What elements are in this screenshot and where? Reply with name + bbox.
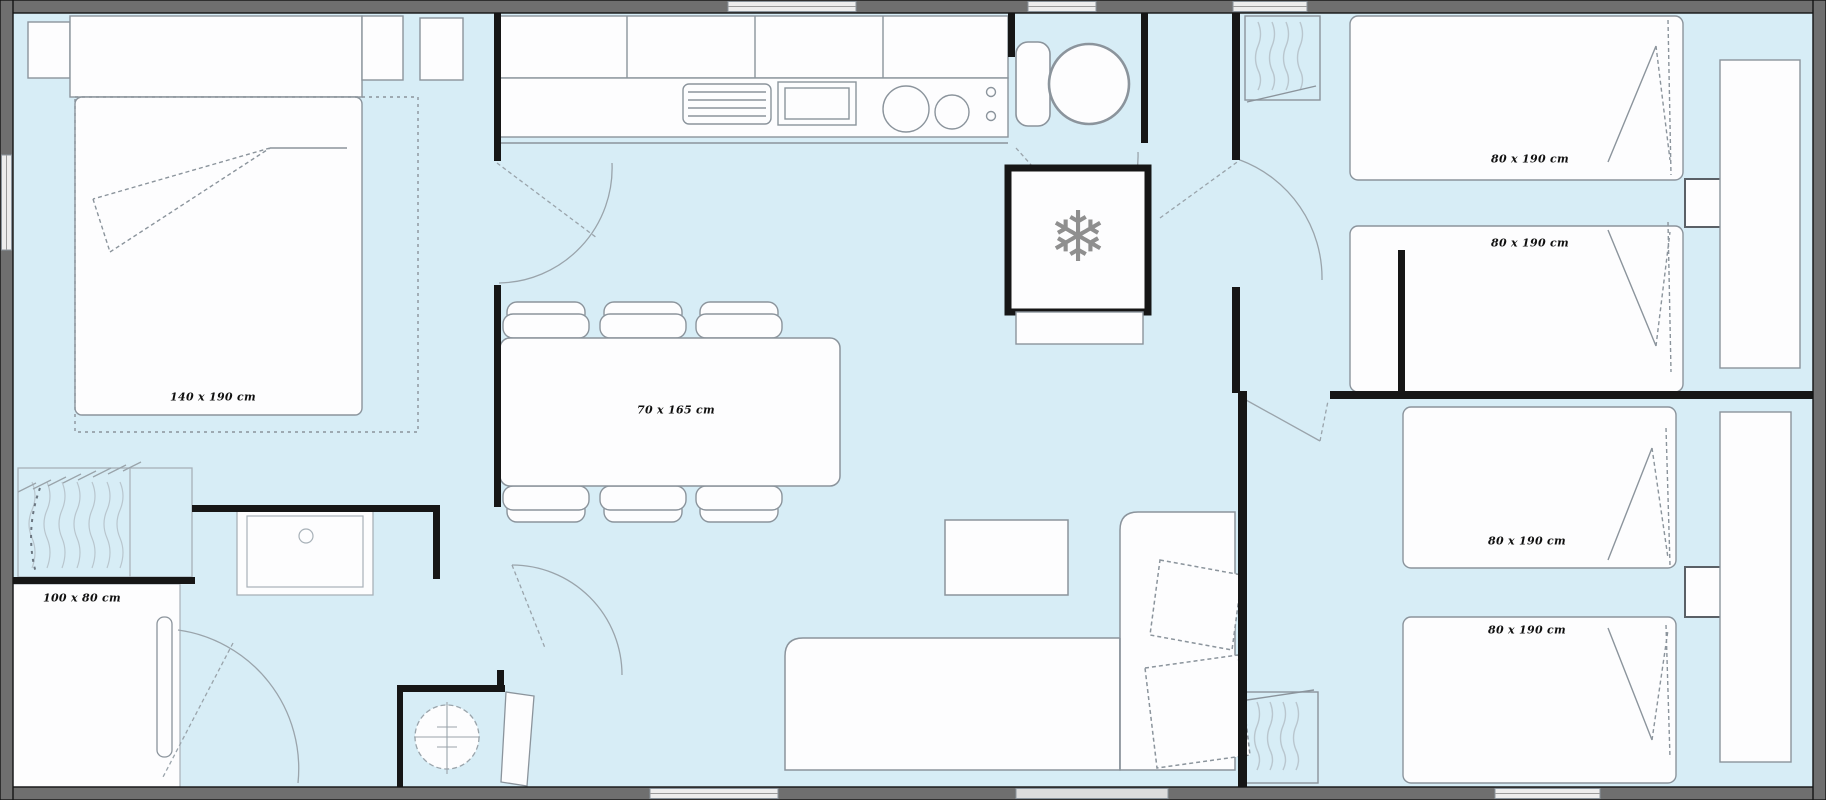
sofa-seat <box>785 638 1120 770</box>
wall <box>397 685 403 788</box>
chair <box>696 486 782 522</box>
dimension-label-shower: 100 x 80 cm <box>43 592 121 605</box>
wall <box>1232 13 1240 160</box>
pillow <box>1145 655 1250 768</box>
wall <box>1141 13 1148 143</box>
chair <box>696 302 782 338</box>
toilet-tank <box>1016 42 1050 126</box>
wall <box>1813 0 1826 800</box>
floor-plan: 140 x 190 cm 70 x 165 cm 100 x 80 cm 80 … <box>0 0 1826 800</box>
wall <box>192 505 440 512</box>
upper-cabinets <box>500 16 1008 78</box>
nightstand <box>28 22 70 78</box>
wardrobe <box>1720 412 1791 762</box>
toilet-bowl <box>1049 44 1129 124</box>
floor-plan-drawing <box>0 0 1826 800</box>
wall <box>433 505 440 579</box>
dimension-label-bed-4: 80 x 190 cm <box>1488 624 1566 637</box>
shelf <box>420 18 463 80</box>
wall <box>497 670 504 692</box>
chair <box>600 486 686 522</box>
nightstand <box>1685 179 1725 227</box>
wall <box>1232 287 1240 393</box>
wall <box>1238 391 1247 787</box>
coffee-table <box>945 520 1068 595</box>
freezer-shelf <box>1016 312 1143 344</box>
double-bed <box>75 97 362 415</box>
bathroom-floor <box>13 584 180 787</box>
nightstand <box>362 16 403 80</box>
dimension-label-dining-table: 70 x 165 cm <box>637 404 715 417</box>
single-bed <box>1403 617 1676 783</box>
wardrobe <box>1720 60 1800 368</box>
chair <box>503 302 589 338</box>
snowflake-icon: ❄ <box>1049 202 1108 272</box>
wall <box>0 0 1826 13</box>
chair <box>600 302 686 338</box>
washbasin <box>237 508 373 595</box>
wall <box>494 285 501 507</box>
wall <box>1398 250 1405 393</box>
wall <box>1330 391 1813 399</box>
headboard <box>70 16 362 97</box>
pillow <box>1150 560 1242 650</box>
entrance-door <box>1016 789 1168 799</box>
dimension-label-bed-3: 80 x 190 cm <box>1488 535 1566 548</box>
wall <box>13 577 195 584</box>
wall <box>1008 13 1015 57</box>
dimension-label-master-bed: 140 x 190 cm <box>170 391 256 404</box>
chair <box>503 486 589 522</box>
dimension-label-bed-2: 80 x 190 cm <box>1491 237 1569 250</box>
kitchen <box>500 16 1008 143</box>
bathroom-door-leaf <box>157 617 172 757</box>
wall <box>494 13 501 161</box>
dimension-label-bed-1: 80 x 190 cm <box>1491 153 1569 166</box>
wall <box>0 0 13 800</box>
toilet <box>1016 42 1129 126</box>
nightstand <box>1685 567 1725 617</box>
wall <box>397 685 505 692</box>
